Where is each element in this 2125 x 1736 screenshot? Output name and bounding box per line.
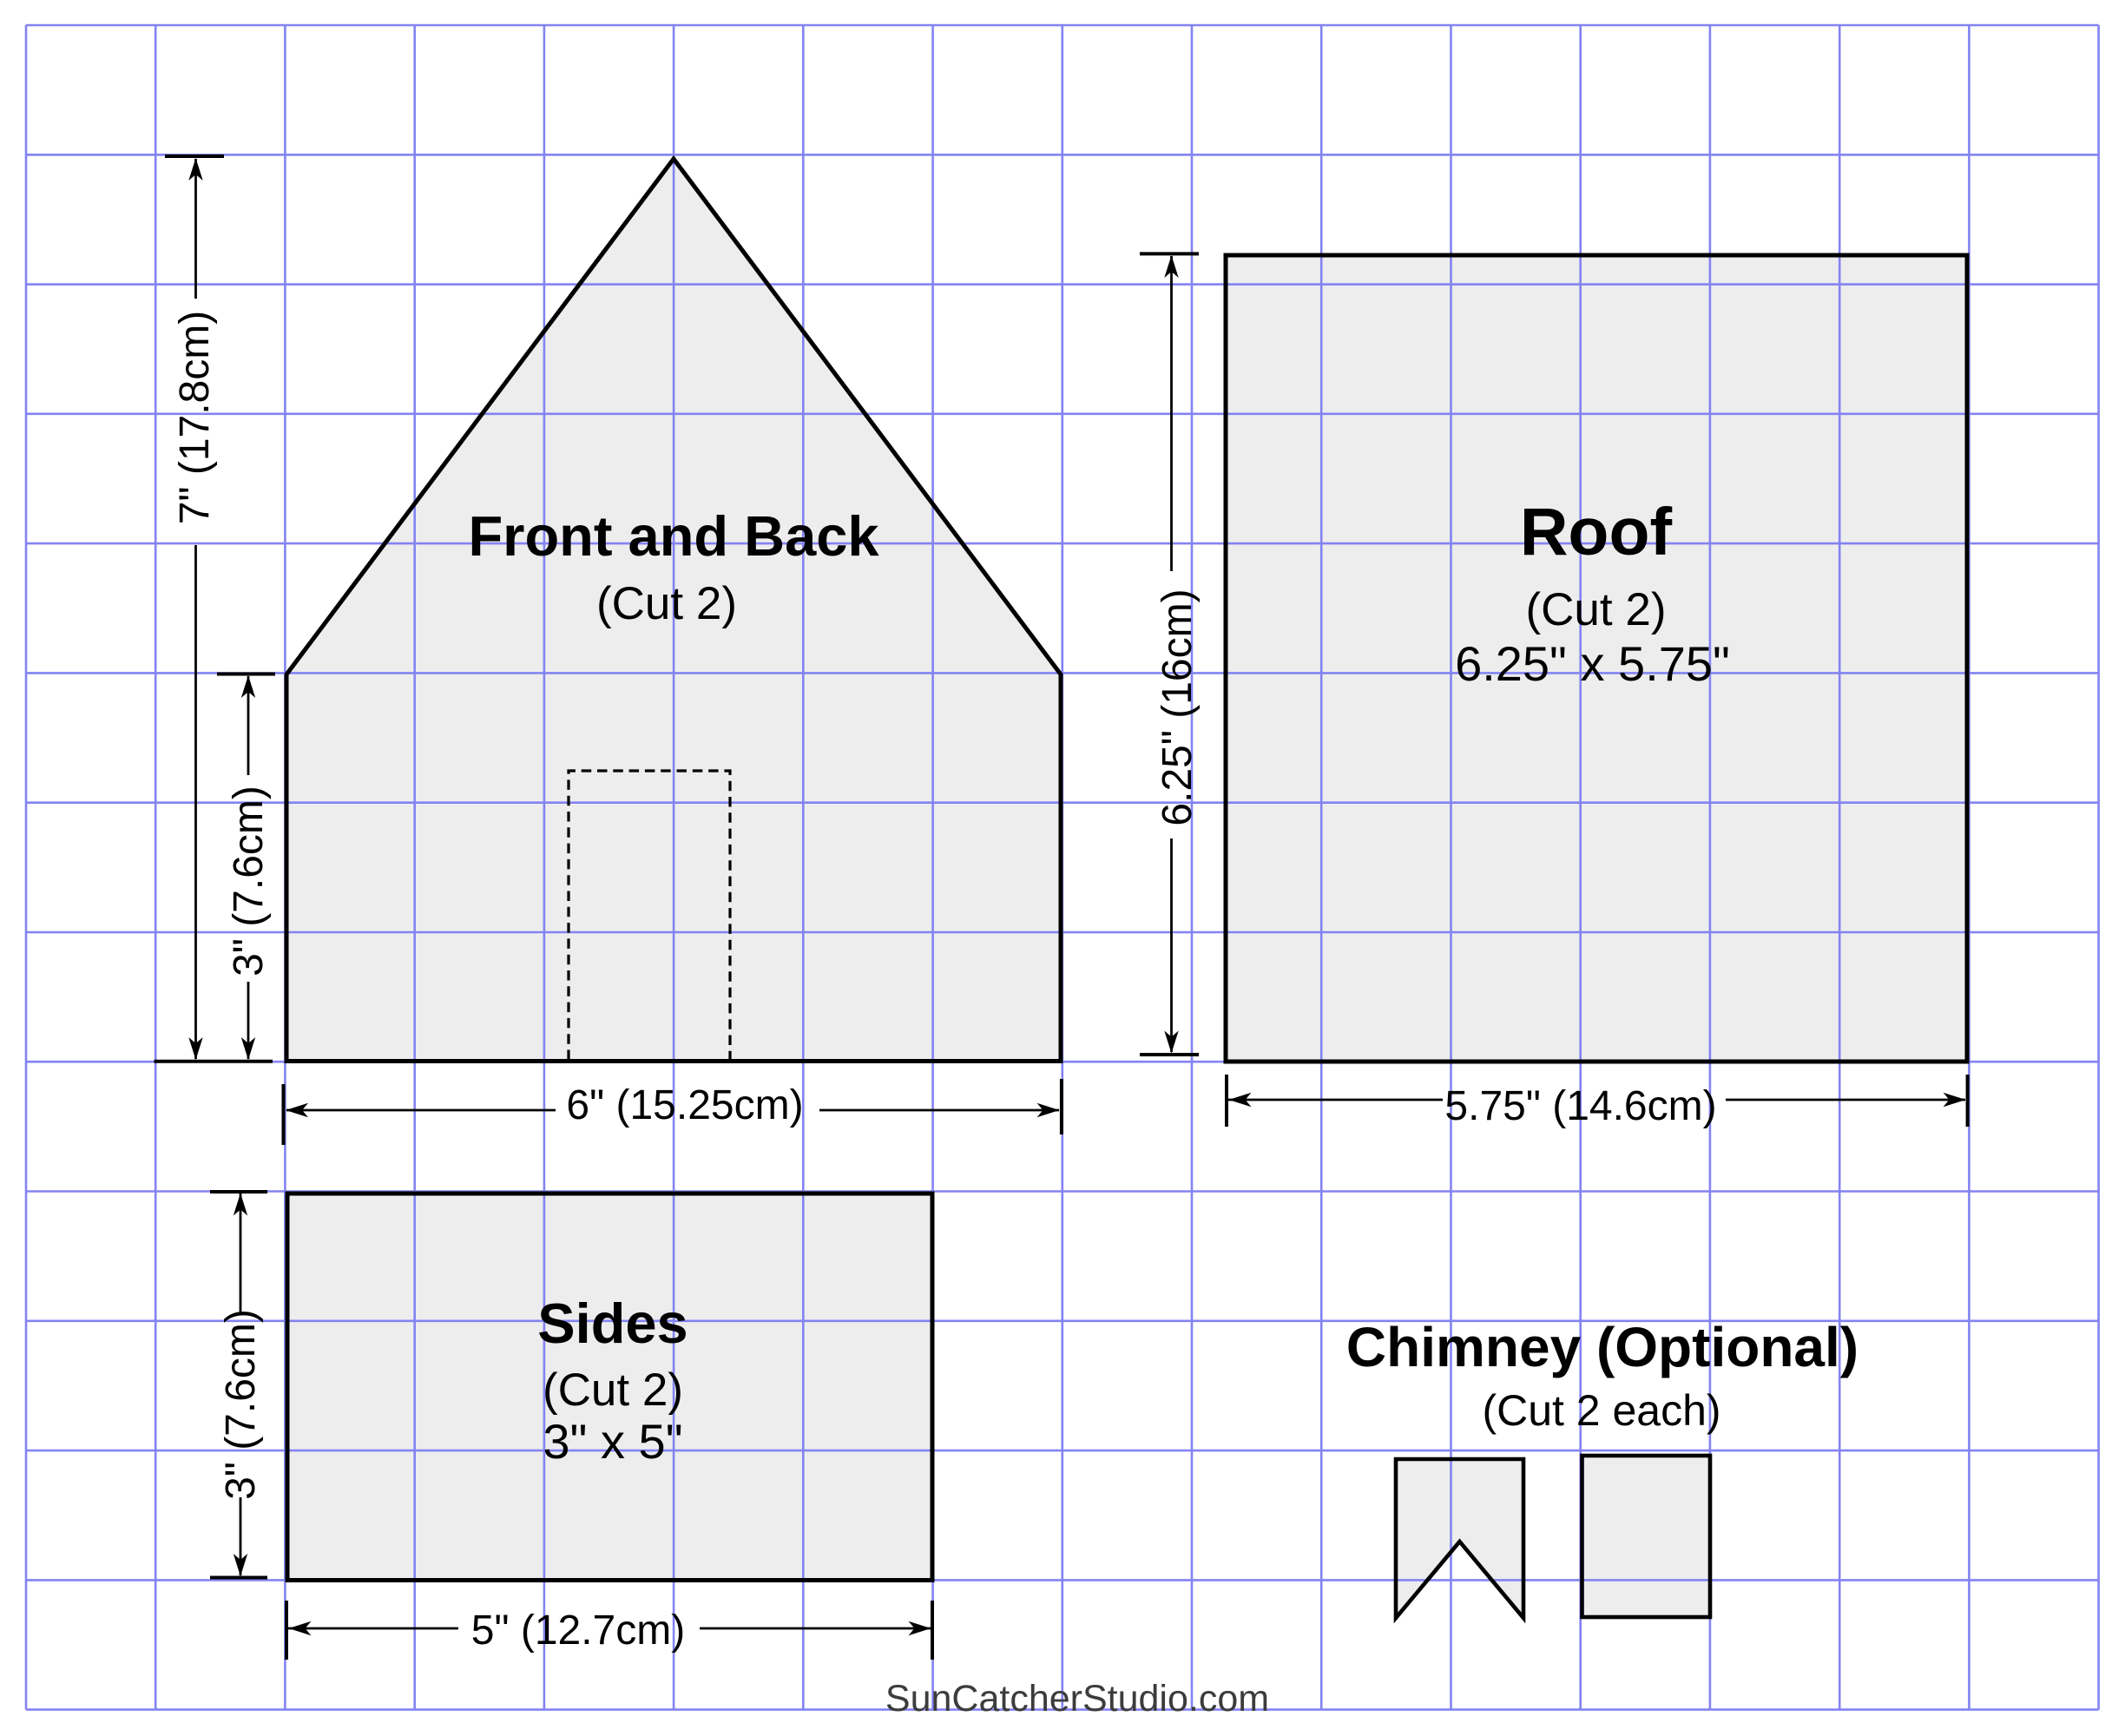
- svg-text:6.25" x 5.75": 6.25" x 5.75": [1455, 636, 1730, 691]
- svg-text:5" (12.7cm): 5" (12.7cm): [471, 1608, 685, 1654]
- svg-text:3" (7.6cm): 3" (7.6cm): [226, 786, 272, 976]
- svg-text:3" x 5": 3" x 5": [543, 1414, 682, 1469]
- svg-text:Front and Back: Front and Back: [468, 504, 879, 568]
- svg-text:(Cut 2): (Cut 2): [1526, 584, 1667, 635]
- svg-text:7" (17.8cm): 7" (17.8cm): [172, 311, 218, 524]
- svg-text:(Cut 2): (Cut 2): [596, 578, 737, 629]
- svg-text:6" (15.25cm): 6" (15.25cm): [566, 1082, 803, 1128]
- svg-text:Chimney (Optional): Chimney (Optional): [1346, 1316, 1859, 1378]
- svg-text:3" (7.6cm): 3" (7.6cm): [218, 1309, 264, 1500]
- svg-text:5.75" (14.6cm): 5.75" (14.6cm): [1444, 1083, 1716, 1129]
- svg-text:(Cut 2 each): (Cut 2 each): [1482, 1386, 1720, 1435]
- svg-text:SunCatcherStudio.com: SunCatcherStudio.com: [885, 1678, 1269, 1720]
- svg-text:Sides: Sides: [537, 1292, 687, 1355]
- svg-text:6.25" (16cm): 6.25" (16cm): [1155, 589, 1201, 825]
- svg-text:(Cut 2): (Cut 2): [543, 1364, 683, 1416]
- svg-text:Roof: Roof: [1520, 495, 1673, 569]
